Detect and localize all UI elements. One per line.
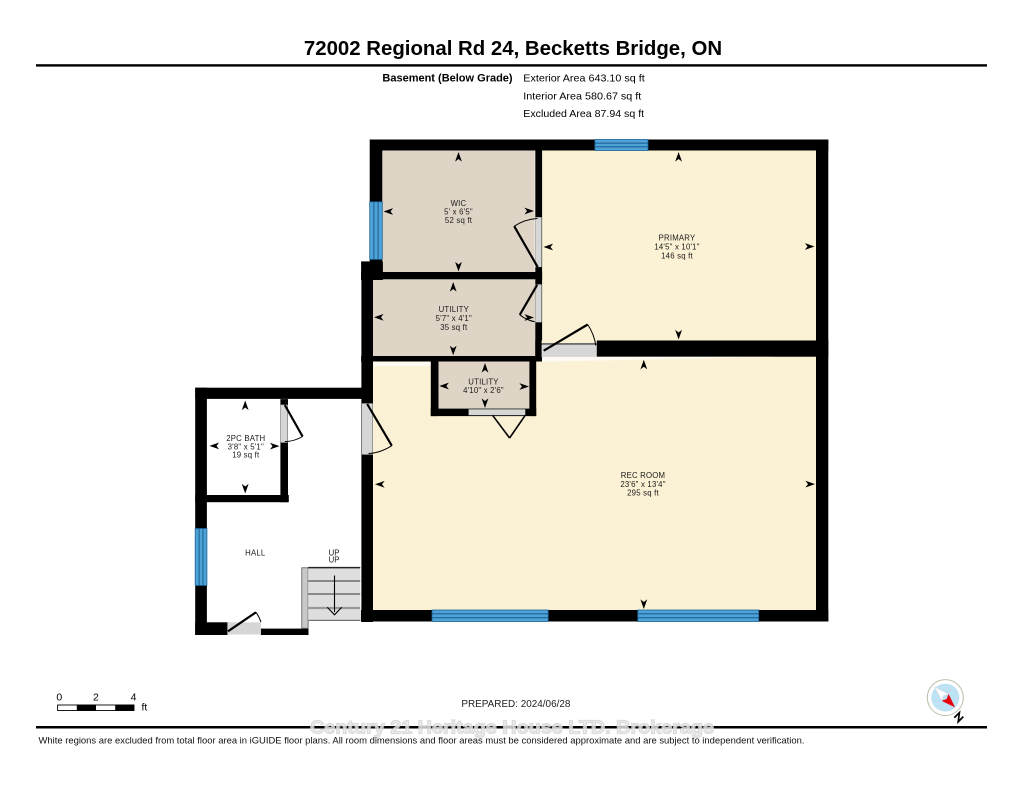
svg-text:19 sq ft: 19 sq ft bbox=[232, 451, 260, 460]
svg-text:4: 4 bbox=[131, 692, 137, 704]
svg-text:295 sq ft: 295 sq ft bbox=[627, 488, 659, 497]
svg-text:2: 2 bbox=[93, 692, 99, 704]
svg-text:UP: UP bbox=[329, 556, 340, 565]
svg-text:PREPARED: 2024/06/28: PREPARED: 2024/06/28 bbox=[461, 699, 570, 710]
svg-text:PRIMARY: PRIMARY bbox=[659, 234, 696, 243]
svg-text:5'7" x 4'1": 5'7" x 4'1" bbox=[436, 314, 472, 323]
svg-text:Interior Area 580.67 sq ft: Interior Area 580.67 sq ft bbox=[523, 90, 641, 102]
svg-text:4'10" x 2'6": 4'10" x 2'6" bbox=[463, 386, 504, 395]
svg-text:Excluded Area 87.94 sq ft: Excluded Area 87.94 sq ft bbox=[523, 108, 644, 120]
svg-text:14'5" x 10'1": 14'5" x 10'1" bbox=[654, 243, 699, 252]
svg-text:72002 Regional Rd 24, Becketts: 72002 Regional Rd 24, Becketts Bridge, O… bbox=[304, 38, 722, 60]
svg-text:35 sq ft: 35 sq ft bbox=[440, 323, 468, 332]
svg-text:UTILITY: UTILITY bbox=[468, 377, 499, 386]
svg-text:0: 0 bbox=[56, 692, 62, 704]
svg-text:Exterior Area 643.10 sq ft: Exterior Area 643.10 sq ft bbox=[523, 72, 644, 84]
svg-text:REC ROOM: REC ROOM bbox=[621, 471, 665, 480]
svg-text:146 sq ft: 146 sq ft bbox=[661, 252, 693, 261]
svg-text:UTILITY: UTILITY bbox=[439, 305, 470, 314]
svg-text:Basement (Below Grade): Basement (Below Grade) bbox=[382, 72, 513, 84]
svg-text:52 sq ft: 52 sq ft bbox=[445, 216, 473, 225]
svg-text:White regions are excluded fro: White regions are excluded from total fl… bbox=[39, 735, 805, 746]
svg-text:HALL: HALL bbox=[245, 549, 266, 558]
svg-text:ft: ft bbox=[142, 702, 148, 714]
